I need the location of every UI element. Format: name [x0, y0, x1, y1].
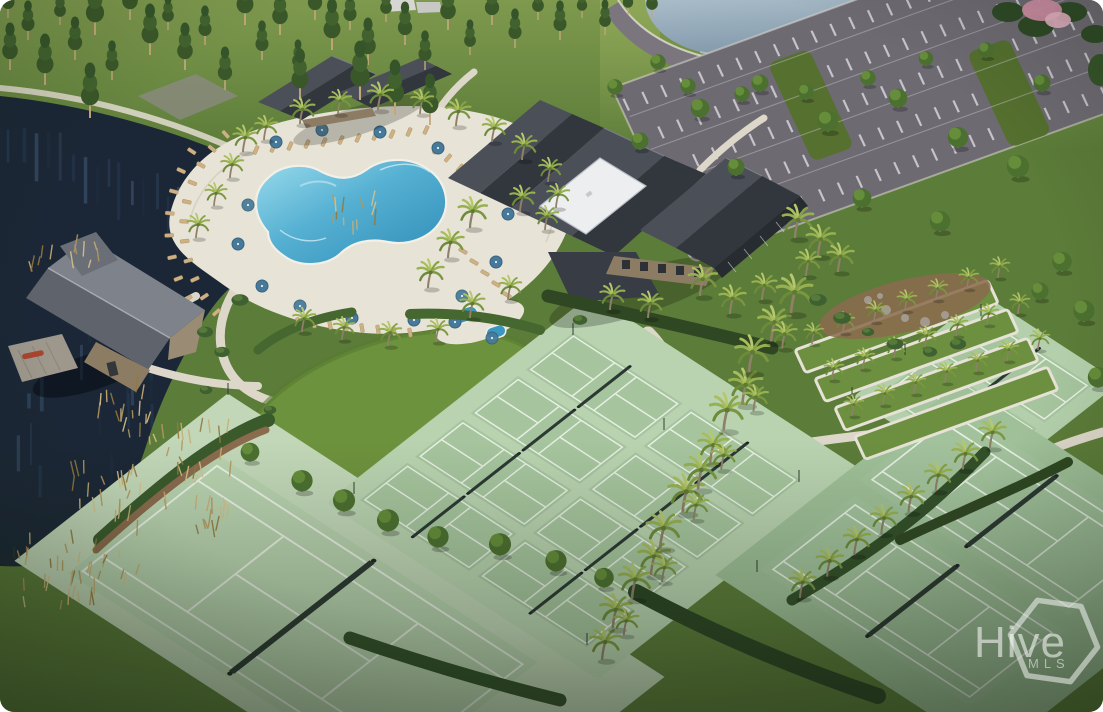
mls-label: MLS: [1028, 656, 1070, 671]
aerial-community-rendering: Hive MLS: [0, 0, 1103, 712]
vignette: [0, 0, 1103, 712]
